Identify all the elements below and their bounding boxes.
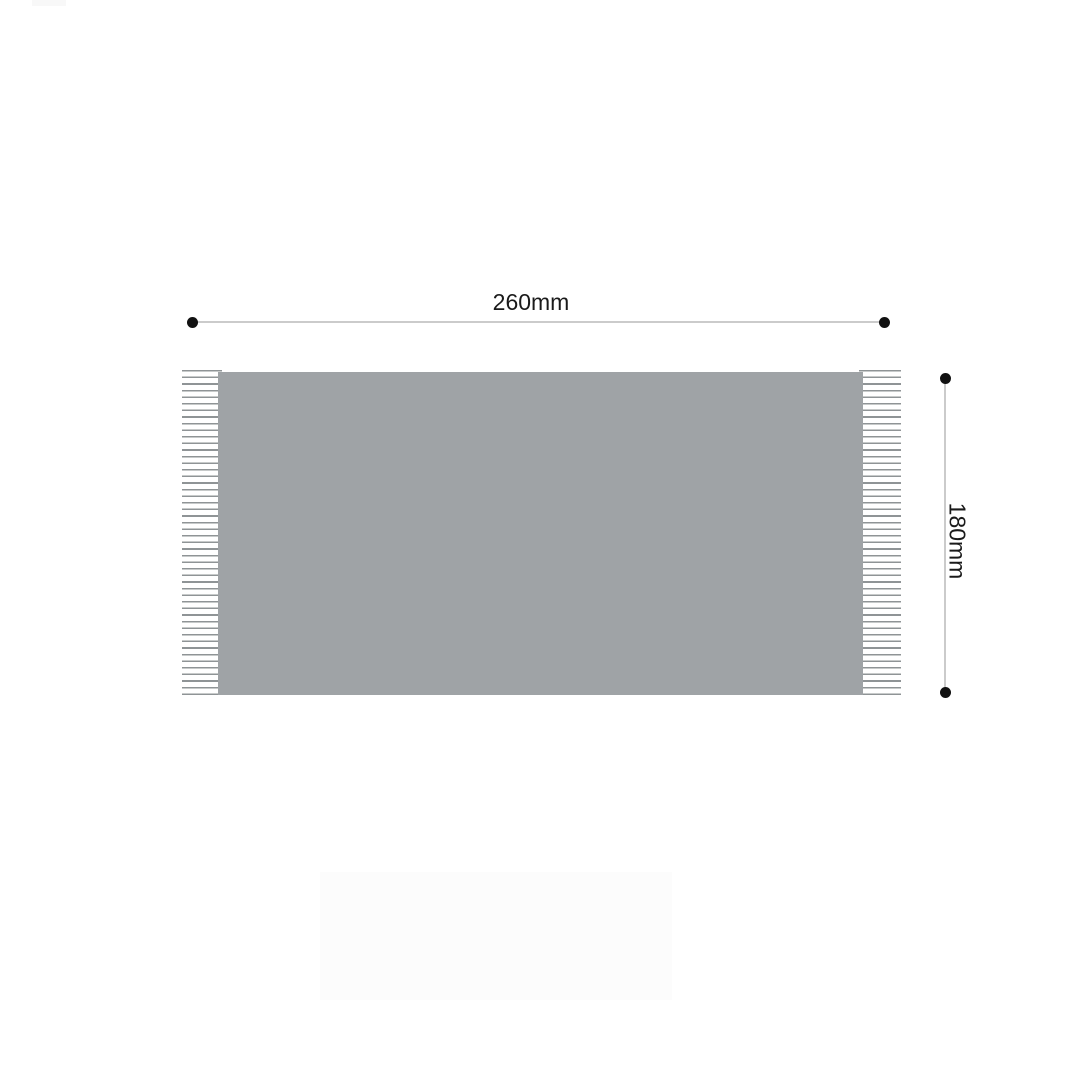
width-dimension-line: [192, 321, 884, 323]
height-dimension-label: 180mm: [944, 503, 969, 580]
blanket-body: [218, 372, 863, 695]
product-dimension-diagram: 260mm 180mm: [0, 0, 1080, 1080]
width-dimension-endpoint-dot-right: [879, 317, 890, 328]
corner-artifact: [32, 0, 66, 6]
blanket-fringe-left: [182, 370, 222, 700]
blanket-fringe-right: [859, 370, 901, 700]
height-dimension-endpoint-dot-top: [940, 373, 951, 384]
width-dimension-label: 260mm: [493, 290, 570, 315]
floor-shadow: [320, 872, 672, 1000]
height-dimension-endpoint-dot-bottom: [940, 687, 951, 698]
width-dimension-endpoint-dot-left: [187, 317, 198, 328]
